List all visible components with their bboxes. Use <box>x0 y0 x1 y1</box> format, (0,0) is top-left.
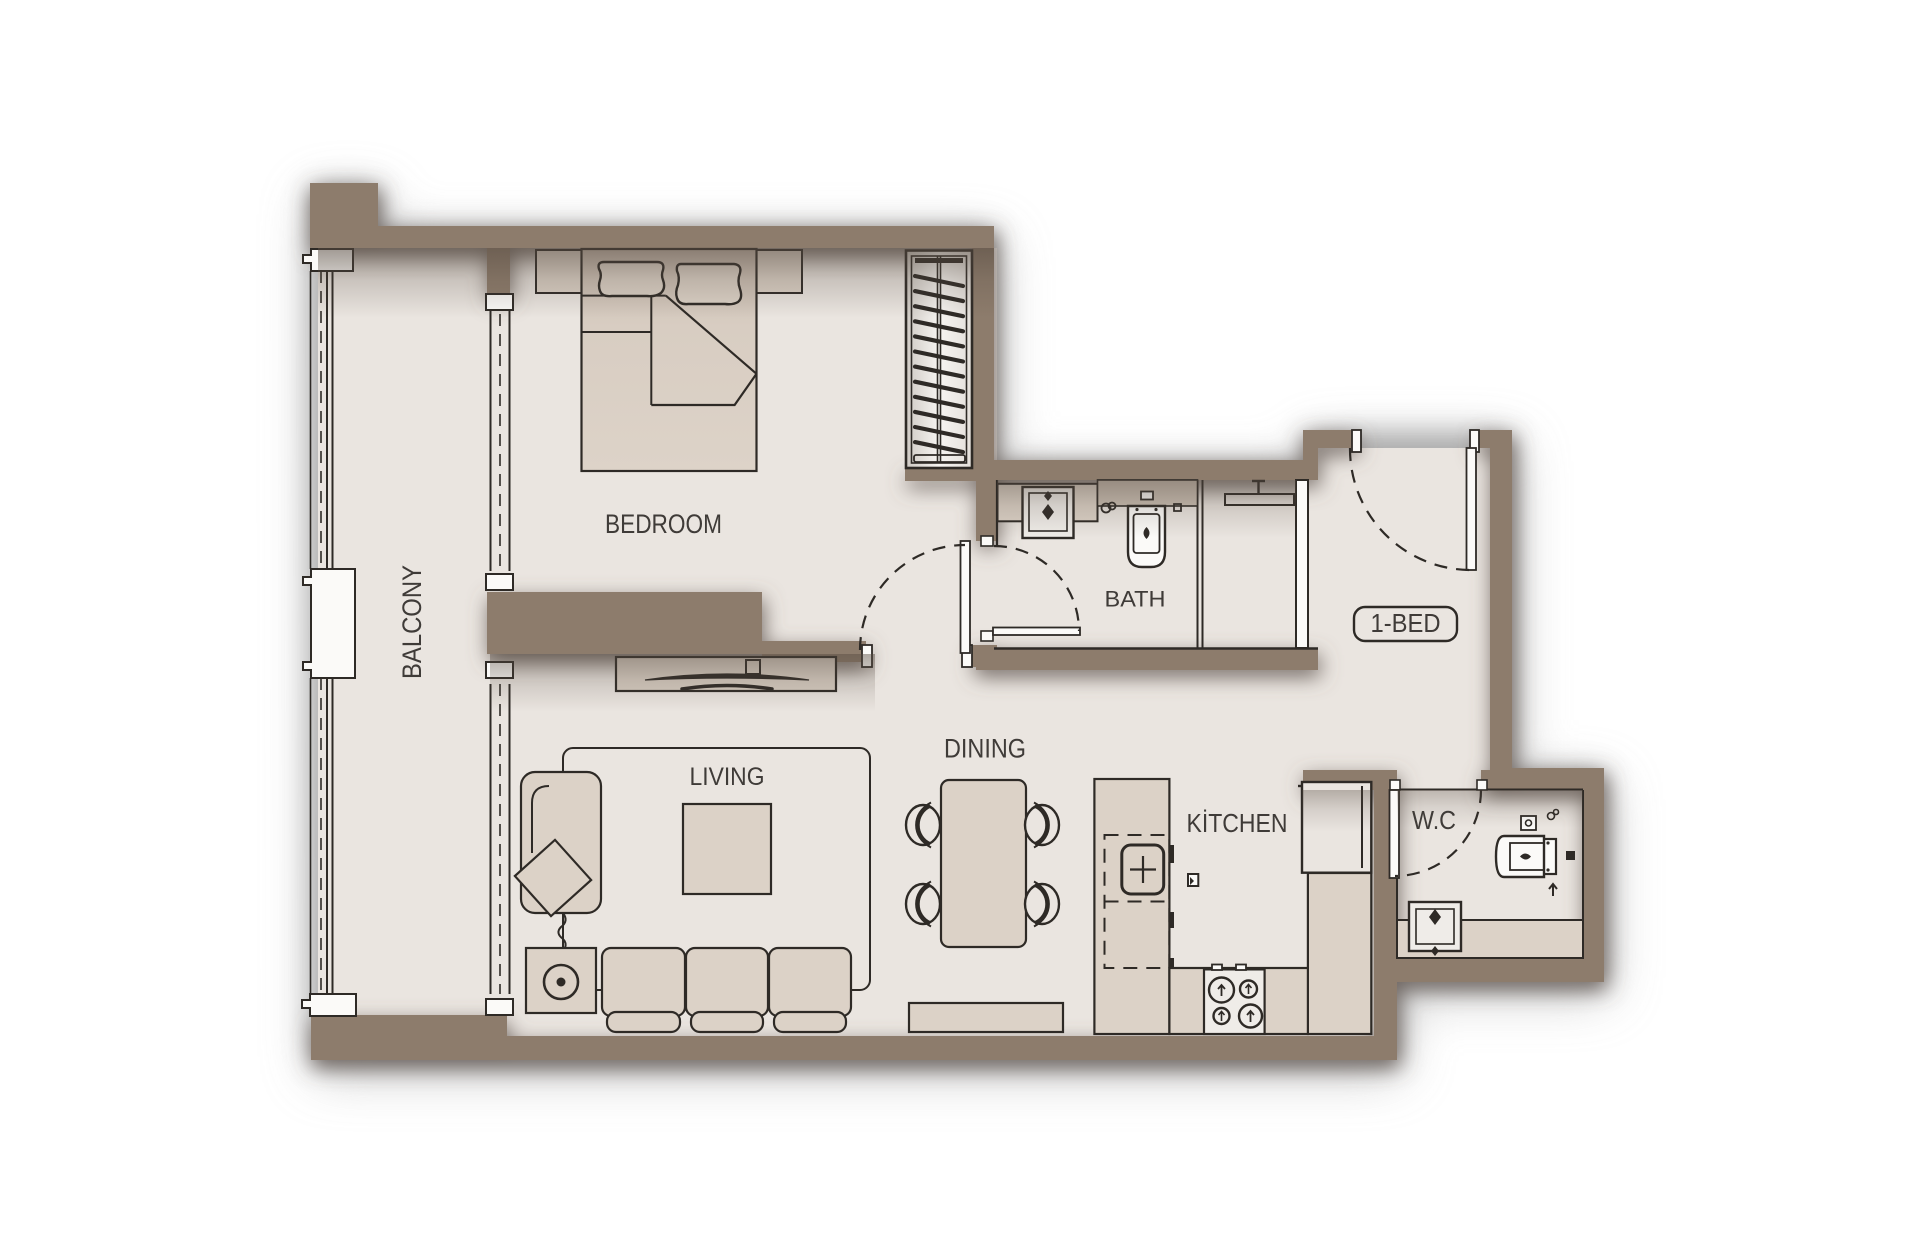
svg-text:KİTCHEN: KİTCHEN <box>1187 808 1288 838</box>
svg-text:1-BED: 1-BED <box>1371 608 1441 638</box>
svg-text:BEDROOM: BEDROOM <box>605 509 722 539</box>
svg-text:DINING: DINING <box>944 734 1026 764</box>
svg-text:W.C: W.C <box>1412 805 1456 835</box>
svg-text:LIVING: LIVING <box>690 763 765 791</box>
svg-text:BALCONY: BALCONY <box>397 565 427 679</box>
svg-text:BATH: BATH <box>1105 587 1166 612</box>
